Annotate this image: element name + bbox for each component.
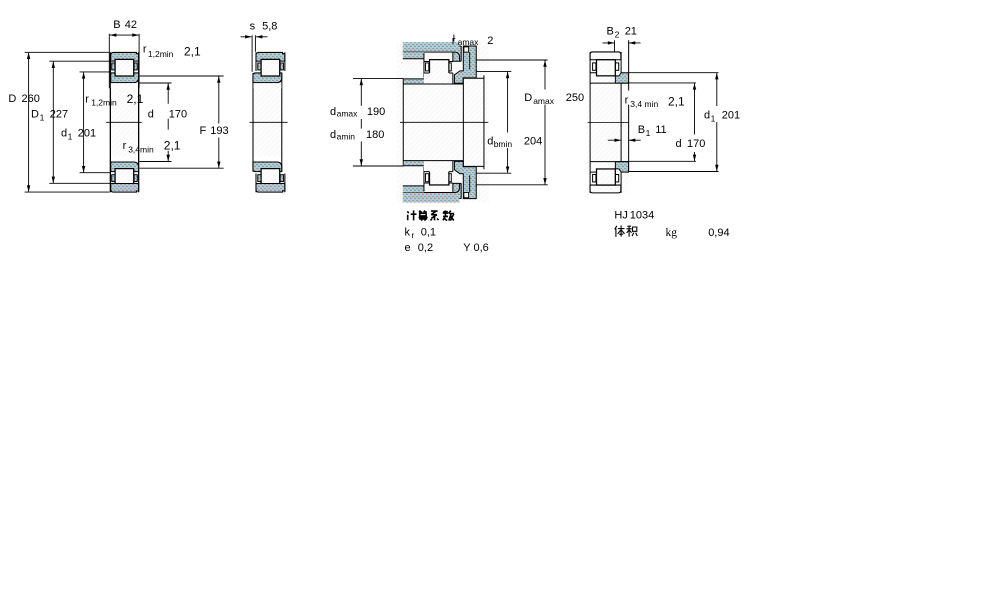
- svg-text:D: D: [31, 109, 39, 121]
- svg-text:r: r: [625, 94, 629, 106]
- svg-text:d: d: [61, 128, 67, 140]
- svg-text:1: 1: [40, 113, 45, 123]
- svg-text:r: r: [143, 44, 147, 56]
- svg-text:D: D: [524, 92, 532, 104]
- svg-text:1,2min: 1,2min: [91, 98, 117, 108]
- svg-text:2,1: 2,1: [164, 139, 181, 153]
- svg-text:D: D: [8, 93, 16, 105]
- svg-text:e: e: [405, 242, 411, 254]
- svg-text:3,4 min: 3,4 min: [630, 99, 658, 109]
- svg-text:3,4min: 3,4min: [128, 145, 154, 155]
- svg-text:5,8: 5,8: [262, 21, 277, 33]
- svg-text:d: d: [704, 109, 710, 121]
- svg-text:B: B: [607, 26, 614, 38]
- svg-text:k: k: [405, 227, 411, 239]
- svg-text:kg: kg: [666, 227, 678, 239]
- svg-text:d: d: [148, 109, 154, 121]
- svg-text:204: 204: [524, 135, 542, 147]
- svg-text:250: 250: [566, 92, 584, 104]
- svg-text:d: d: [676, 138, 682, 150]
- svg-text:190: 190: [367, 106, 385, 118]
- svg-text:r: r: [85, 94, 89, 106]
- svg-text:r: r: [123, 140, 127, 152]
- svg-text:d: d: [330, 129, 336, 141]
- svg-text:260: 260: [22, 93, 40, 105]
- svg-text:d: d: [487, 135, 493, 147]
- svg-text:Y: Y: [463, 242, 471, 254]
- svg-text:B: B: [638, 124, 645, 136]
- svg-text:r: r: [412, 230, 415, 240]
- svg-text:d: d: [330, 106, 336, 118]
- svg-text:r: r: [452, 35, 456, 47]
- svg-text:amax: amax: [533, 96, 555, 106]
- svg-text:180: 180: [366, 129, 384, 141]
- svg-text:2,1: 2,1: [127, 92, 144, 106]
- svg-text:1: 1: [646, 128, 651, 138]
- svg-text:1: 1: [68, 132, 73, 142]
- svg-text:227: 227: [50, 109, 68, 121]
- svg-text:F: F: [200, 125, 207, 137]
- svg-text:amax: amax: [458, 37, 480, 47]
- svg-text:2: 2: [487, 35, 493, 47]
- svg-text:201: 201: [722, 109, 740, 121]
- svg-text:1: 1: [711, 113, 716, 123]
- svg-text:amin: amin: [337, 132, 356, 142]
- svg-text:HJ: HJ: [614, 210, 627, 222]
- svg-text:0,1: 0,1: [421, 227, 436, 239]
- svg-text:2: 2: [615, 30, 620, 40]
- svg-text:bmin: bmin: [494, 139, 513, 149]
- svg-text:0,6: 0,6: [474, 242, 489, 254]
- svg-text:2,1: 2,1: [184, 44, 201, 58]
- svg-text:201: 201: [78, 128, 96, 140]
- svg-text:170: 170: [169, 109, 187, 121]
- svg-text:21: 21: [625, 26, 637, 38]
- svg-text:0,94: 0,94: [708, 227, 729, 239]
- svg-text:170: 170: [687, 138, 705, 150]
- svg-text:193: 193: [210, 125, 228, 137]
- svg-text:1,2min: 1,2min: [148, 49, 174, 59]
- svg-text:s: s: [250, 21, 256, 33]
- svg-text:0,2: 0,2: [418, 242, 433, 254]
- svg-text:42: 42: [125, 19, 137, 31]
- svg-text:11: 11: [655, 124, 666, 136]
- svg-text:1034: 1034: [630, 210, 654, 222]
- svg-text:B: B: [113, 19, 120, 31]
- svg-text:2,1: 2,1: [668, 94, 685, 108]
- svg-text:amax: amax: [337, 109, 359, 119]
